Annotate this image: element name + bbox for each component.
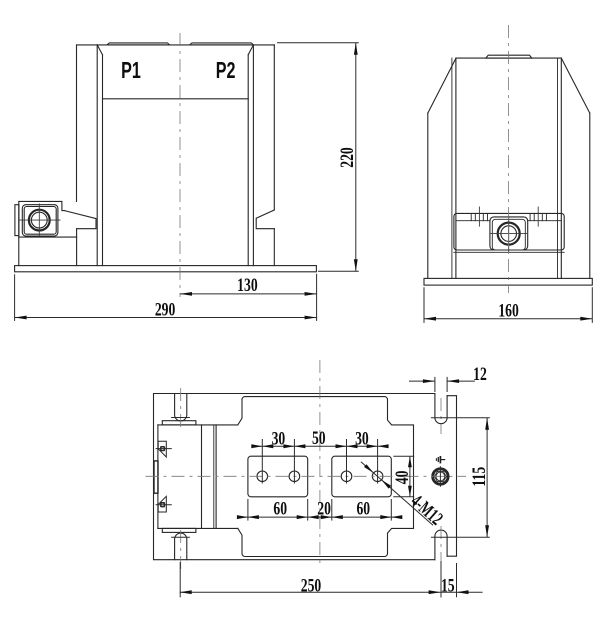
svg-text:160: 160: [498, 299, 519, 321]
svg-text:115: 115: [468, 467, 490, 487]
svg-text:15: 15: [441, 574, 455, 596]
svg-text:30: 30: [272, 427, 286, 449]
svg-text:P1: P1: [121, 59, 141, 84]
svg-text:40: 40: [391, 471, 413, 485]
svg-text:12: 12: [473, 363, 487, 385]
svg-text:20: 20: [317, 497, 331, 519]
svg-text:P2: P2: [216, 59, 236, 84]
svg-text:60: 60: [273, 497, 287, 519]
svg-text:220: 220: [336, 147, 358, 168]
svg-text:50: 50: [312, 427, 326, 449]
svg-text:30: 30: [355, 427, 369, 449]
svg-text:290: 290: [155, 298, 176, 320]
svg-text:130: 130: [237, 274, 258, 296]
svg-text:60: 60: [356, 497, 370, 519]
svg-text:250: 250: [301, 574, 322, 596]
